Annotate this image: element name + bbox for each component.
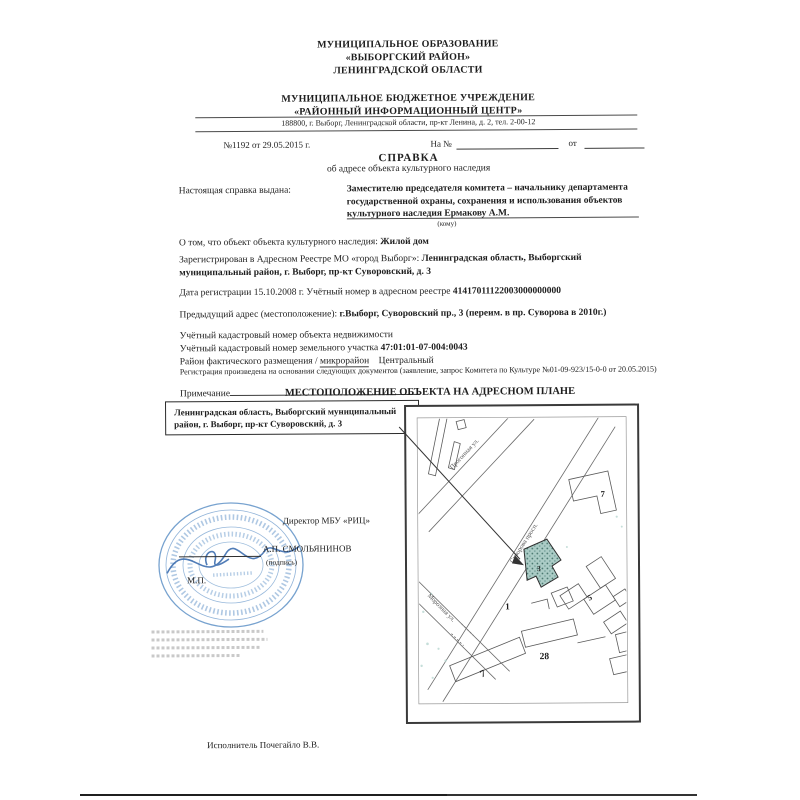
scan-edge-line-left [80, 794, 447, 796]
scanned-document: МУНИЦИПАЛЬНОЕ ОБРАЗОВАНИЕ «ВЫБОРГСКИЙ РА… [0, 0, 800, 800]
address-plan-map: Прогонная ул. Суворова просп. Морозная у… [400, 397, 647, 730]
object-line: О том, что объект объекта культурного на… [179, 234, 649, 249]
registration-basis: Регистрация произведена на основании сле… [180, 364, 658, 377]
incoming-number-blank [456, 138, 558, 150]
registered-line: Зарегистрирован в Адресном Реестре МО «г… [179, 252, 644, 280]
director-title: Директор МБУ «РИЦ» [283, 515, 370, 526]
object-label: О том, что объект объекта культурного на… [179, 237, 378, 248]
registered-label: Зарегистрирован в Адресном Реестре МО «г… [179, 254, 419, 265]
recipient-note: (кому) [347, 219, 547, 228]
director-name: А.П. СМОЛЬЯНИНОВ [263, 543, 352, 554]
issued-label: Настоящая справка выдана: [179, 184, 339, 198]
object-value: Жилой дом [380, 237, 429, 247]
plot-number-1: 1 [505, 601, 510, 611]
org-line-3: ЛЕНИНГРАДСКОЙ ОБЛАСТИ [178, 63, 638, 79]
previous-address-value: г.Выборг, Суворовский пр., 3 (переим. в … [339, 308, 606, 320]
registration-date-label: Дата регистрации 15.10.2008 г. Учётный н… [179, 287, 450, 299]
registry-number: 41417011122003000000000 [453, 286, 561, 297]
executor-line: Исполнитель Почегайло В.В. [207, 739, 319, 750]
seal-placeholder-label: М.П. [187, 575, 206, 585]
letterhead-address: 188800, г. Выборг, Ленинградской области… [178, 117, 638, 129]
signature-note: (подпись) [266, 558, 297, 567]
issued-recipient: Заместителю председателя комитета – нача… [347, 182, 641, 221]
document-subtitle: об адресе объекта культурного наследия [179, 163, 639, 176]
plot-number-3-subject: 3 [537, 564, 541, 573]
reference-row: №1192 от 29.05.2015 г. На № от [178, 137, 648, 140]
registration-date-line: Дата регистрации 15.10.2008 г. Учётный н… [179, 284, 649, 299]
map-callout-address: Ленинградская область, Выборгский муници… [165, 400, 419, 436]
scan-edge-line-right [447, 794, 697, 796]
cadastral-parcel-label: Учётный кадастровый номер земельного уча… [180, 343, 379, 354]
outgoing-number: №1192 от 29.05.2015 г. [223, 140, 310, 151]
previous-address-line: Предыдущий адрес (местоположение): г.Выб… [179, 306, 649, 321]
previous-address-label: Предыдущий адрес (местоположение): [179, 309, 337, 320]
plot-number-28: 28 [540, 652, 550, 662]
cadastral-parcel-value: 47:01:01-07-004:0043 [381, 343, 468, 354]
header-rule-bottom [195, 129, 637, 133]
incoming-date-blank [584, 138, 644, 149]
illegible-small-print [151, 625, 269, 663]
district-value: Центральный [379, 356, 434, 366]
incoming-from-label: от [568, 138, 576, 148]
incoming-number-label: На № [430, 139, 451, 149]
org-header: МУНИЦИПАЛЬНОЕ ОБРАЗОВАНИЕ «ВЫБОРГСКИЙ РА… [178, 37, 638, 79]
